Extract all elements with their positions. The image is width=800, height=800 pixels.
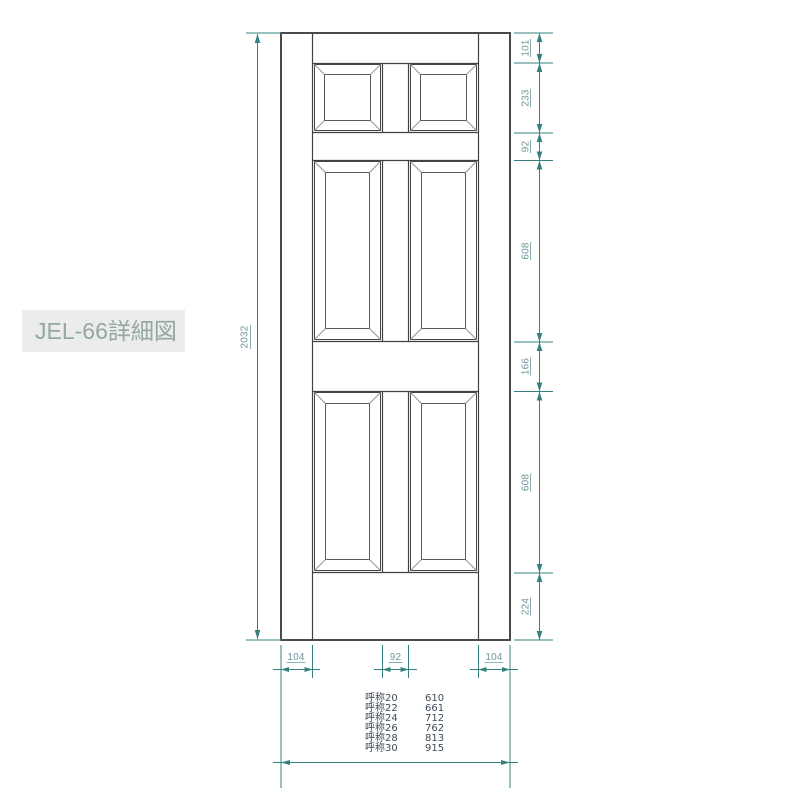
bottom-dimension-row: 104 92 104	[273, 645, 518, 678]
dim-label-top-rail: 101	[521, 39, 532, 57]
drawing-canvas: 2032 101	[0, 0, 800, 800]
size-name: 呼称30	[365, 744, 425, 754]
dim-label-right-stile: 104	[485, 652, 503, 663]
door-outline	[281, 33, 510, 640]
width-size-table: 呼称20 610 呼称22 661 呼称24 712 呼称26 762 呼称28…	[365, 694, 444, 754]
dim-label-upper-rail: 92	[521, 141, 532, 153]
right-dimension-chain: 101 233 92 608 166 608 224	[514, 33, 553, 640]
drawing-title-text: JEL-66詳細図	[35, 318, 177, 344]
dim-label-middle-panel: 608	[521, 242, 532, 260]
dim-label-bottom-rail: 224	[521, 598, 532, 616]
dim-label-bottom-panel: 608	[521, 474, 532, 492]
dim-label-left-stile: 104	[287, 652, 305, 663]
height-dimension: 2032	[240, 33, 283, 640]
height-dimension-label: 2032	[240, 325, 251, 348]
dim-label-center-stile: 92	[390, 652, 402, 663]
dim-label-top-panel: 233	[521, 89, 532, 107]
dim-label-lock-rail: 166	[521, 358, 532, 376]
size-value: 915	[425, 744, 444, 754]
drawing-title-label: JEL-66詳細図	[22, 310, 185, 352]
size-table-row: 呼称30 915	[365, 744, 444, 754]
door-technical-drawing: 2032 101	[0, 0, 800, 800]
